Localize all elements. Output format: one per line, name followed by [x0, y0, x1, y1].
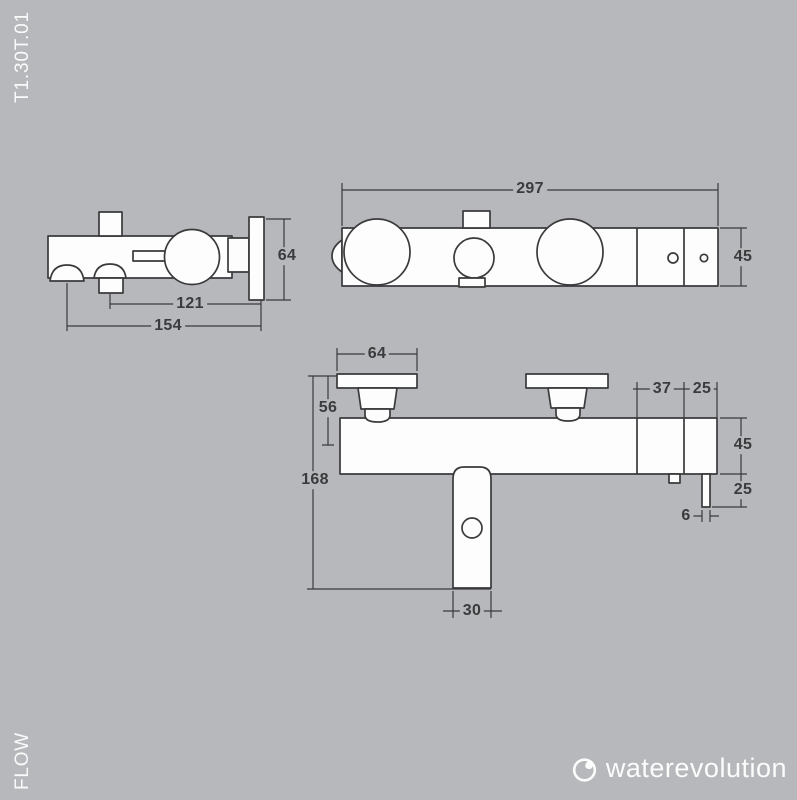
- front-spout-hole: [462, 518, 482, 538]
- top-screw-hole-left: [668, 253, 678, 263]
- dim-front-outlet-width: 6: [678, 507, 693, 525]
- top-spout-tip: [332, 240, 342, 272]
- side-outlet-stub: [99, 278, 123, 293]
- dim-front-handle-height: 56: [316, 399, 340, 417]
- top-screw-hole-right: [700, 254, 707, 261]
- dim-top-body-depth: 45: [731, 248, 755, 266]
- side-handle-knob: [165, 230, 220, 285]
- brand-logo: waterevolution: [571, 753, 787, 784]
- top-view: [332, 211, 718, 287]
- front-handle-left: [337, 374, 417, 422]
- dim-front-end-section: 25: [690, 380, 714, 398]
- product-code: T1.30T.01: [12, 0, 34, 117]
- dim-front-spout-width: 30: [460, 602, 484, 620]
- technical-drawing: [0, 0, 797, 800]
- side-diverter-knob: [99, 212, 122, 236]
- side-cartridge: [228, 238, 249, 272]
- dim-top-total-width: 297: [513, 180, 547, 198]
- side-wall-plate: [249, 217, 264, 300]
- dim-front-panel-width: 37: [650, 380, 674, 398]
- dim-front-handle-width: 64: [365, 345, 389, 363]
- dim-side-total-depth: 154: [151, 317, 185, 335]
- top-handle-cap-right: [537, 219, 603, 285]
- front-view: [337, 374, 717, 588]
- collection-name: FLOW: [12, 721, 34, 800]
- top-diverter-circle: [454, 238, 494, 278]
- front-outlet-pipe: [702, 474, 710, 507]
- top-handle-cap-left: [344, 219, 410, 285]
- top-diverter-stub: [459, 278, 485, 287]
- top-diverter-knob: [463, 211, 490, 228]
- dim-front-outlet-drop: 25: [731, 481, 755, 499]
- dim-side-plate-height: 64: [275, 247, 299, 265]
- side-view: [48, 212, 264, 300]
- dim-front-body-height: 45: [731, 436, 755, 454]
- dim-side-diverter-wall: 121: [173, 295, 207, 313]
- water-drop-icon: [571, 755, 599, 783]
- spec-sheet-page: 64 121 154 297 45 64 56 168 37 25 45 25 …: [0, 0, 797, 800]
- brand-name: waterevolution: [606, 753, 787, 784]
- front-body: [340, 418, 717, 474]
- dim-front-total-height: 168: [298, 471, 332, 489]
- front-handle-right: [526, 374, 608, 421]
- front-bottom-notch: [669, 474, 680, 483]
